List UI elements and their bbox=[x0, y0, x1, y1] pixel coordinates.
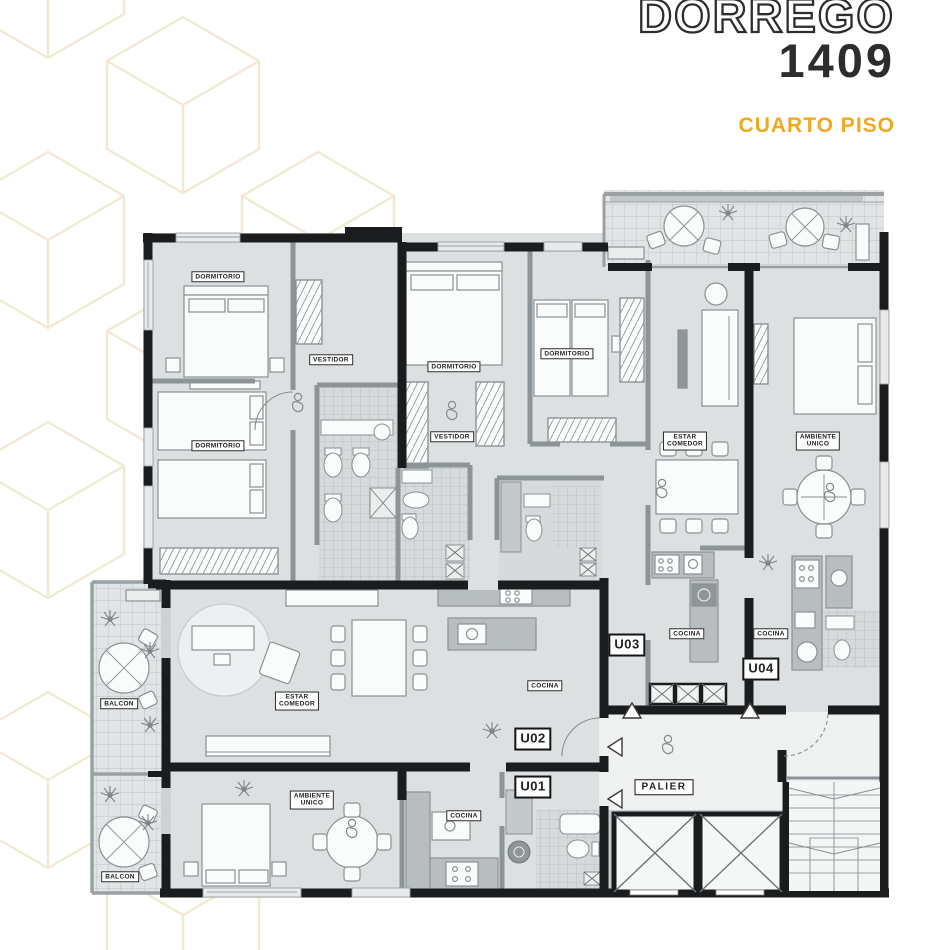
wardrobe-u02 bbox=[296, 280, 322, 344]
header: DORREGO 1409 CUARTO PISO bbox=[638, 0, 895, 138]
bathroom-middle bbox=[499, 480, 602, 582]
elevator-2 bbox=[700, 814, 782, 895]
bathroom-u02 bbox=[319, 387, 398, 583]
street-number: 1409 bbox=[638, 39, 895, 84]
floor-plan-drawing bbox=[0, 0, 950, 950]
stairs bbox=[789, 782, 880, 891]
bathroom-u03 bbox=[398, 465, 470, 584]
elevator-1 bbox=[614, 814, 696, 895]
bathroom-u04 bbox=[822, 610, 880, 668]
floor-title: CUARTO PISO bbox=[638, 114, 895, 138]
service-shafts bbox=[650, 684, 726, 704]
wall-block bbox=[345, 227, 402, 239]
floor-plan-page: DORREGO 1409 CUARTO PISO bbox=[0, 0, 950, 950]
bed-double-u02 bbox=[166, 286, 284, 389]
